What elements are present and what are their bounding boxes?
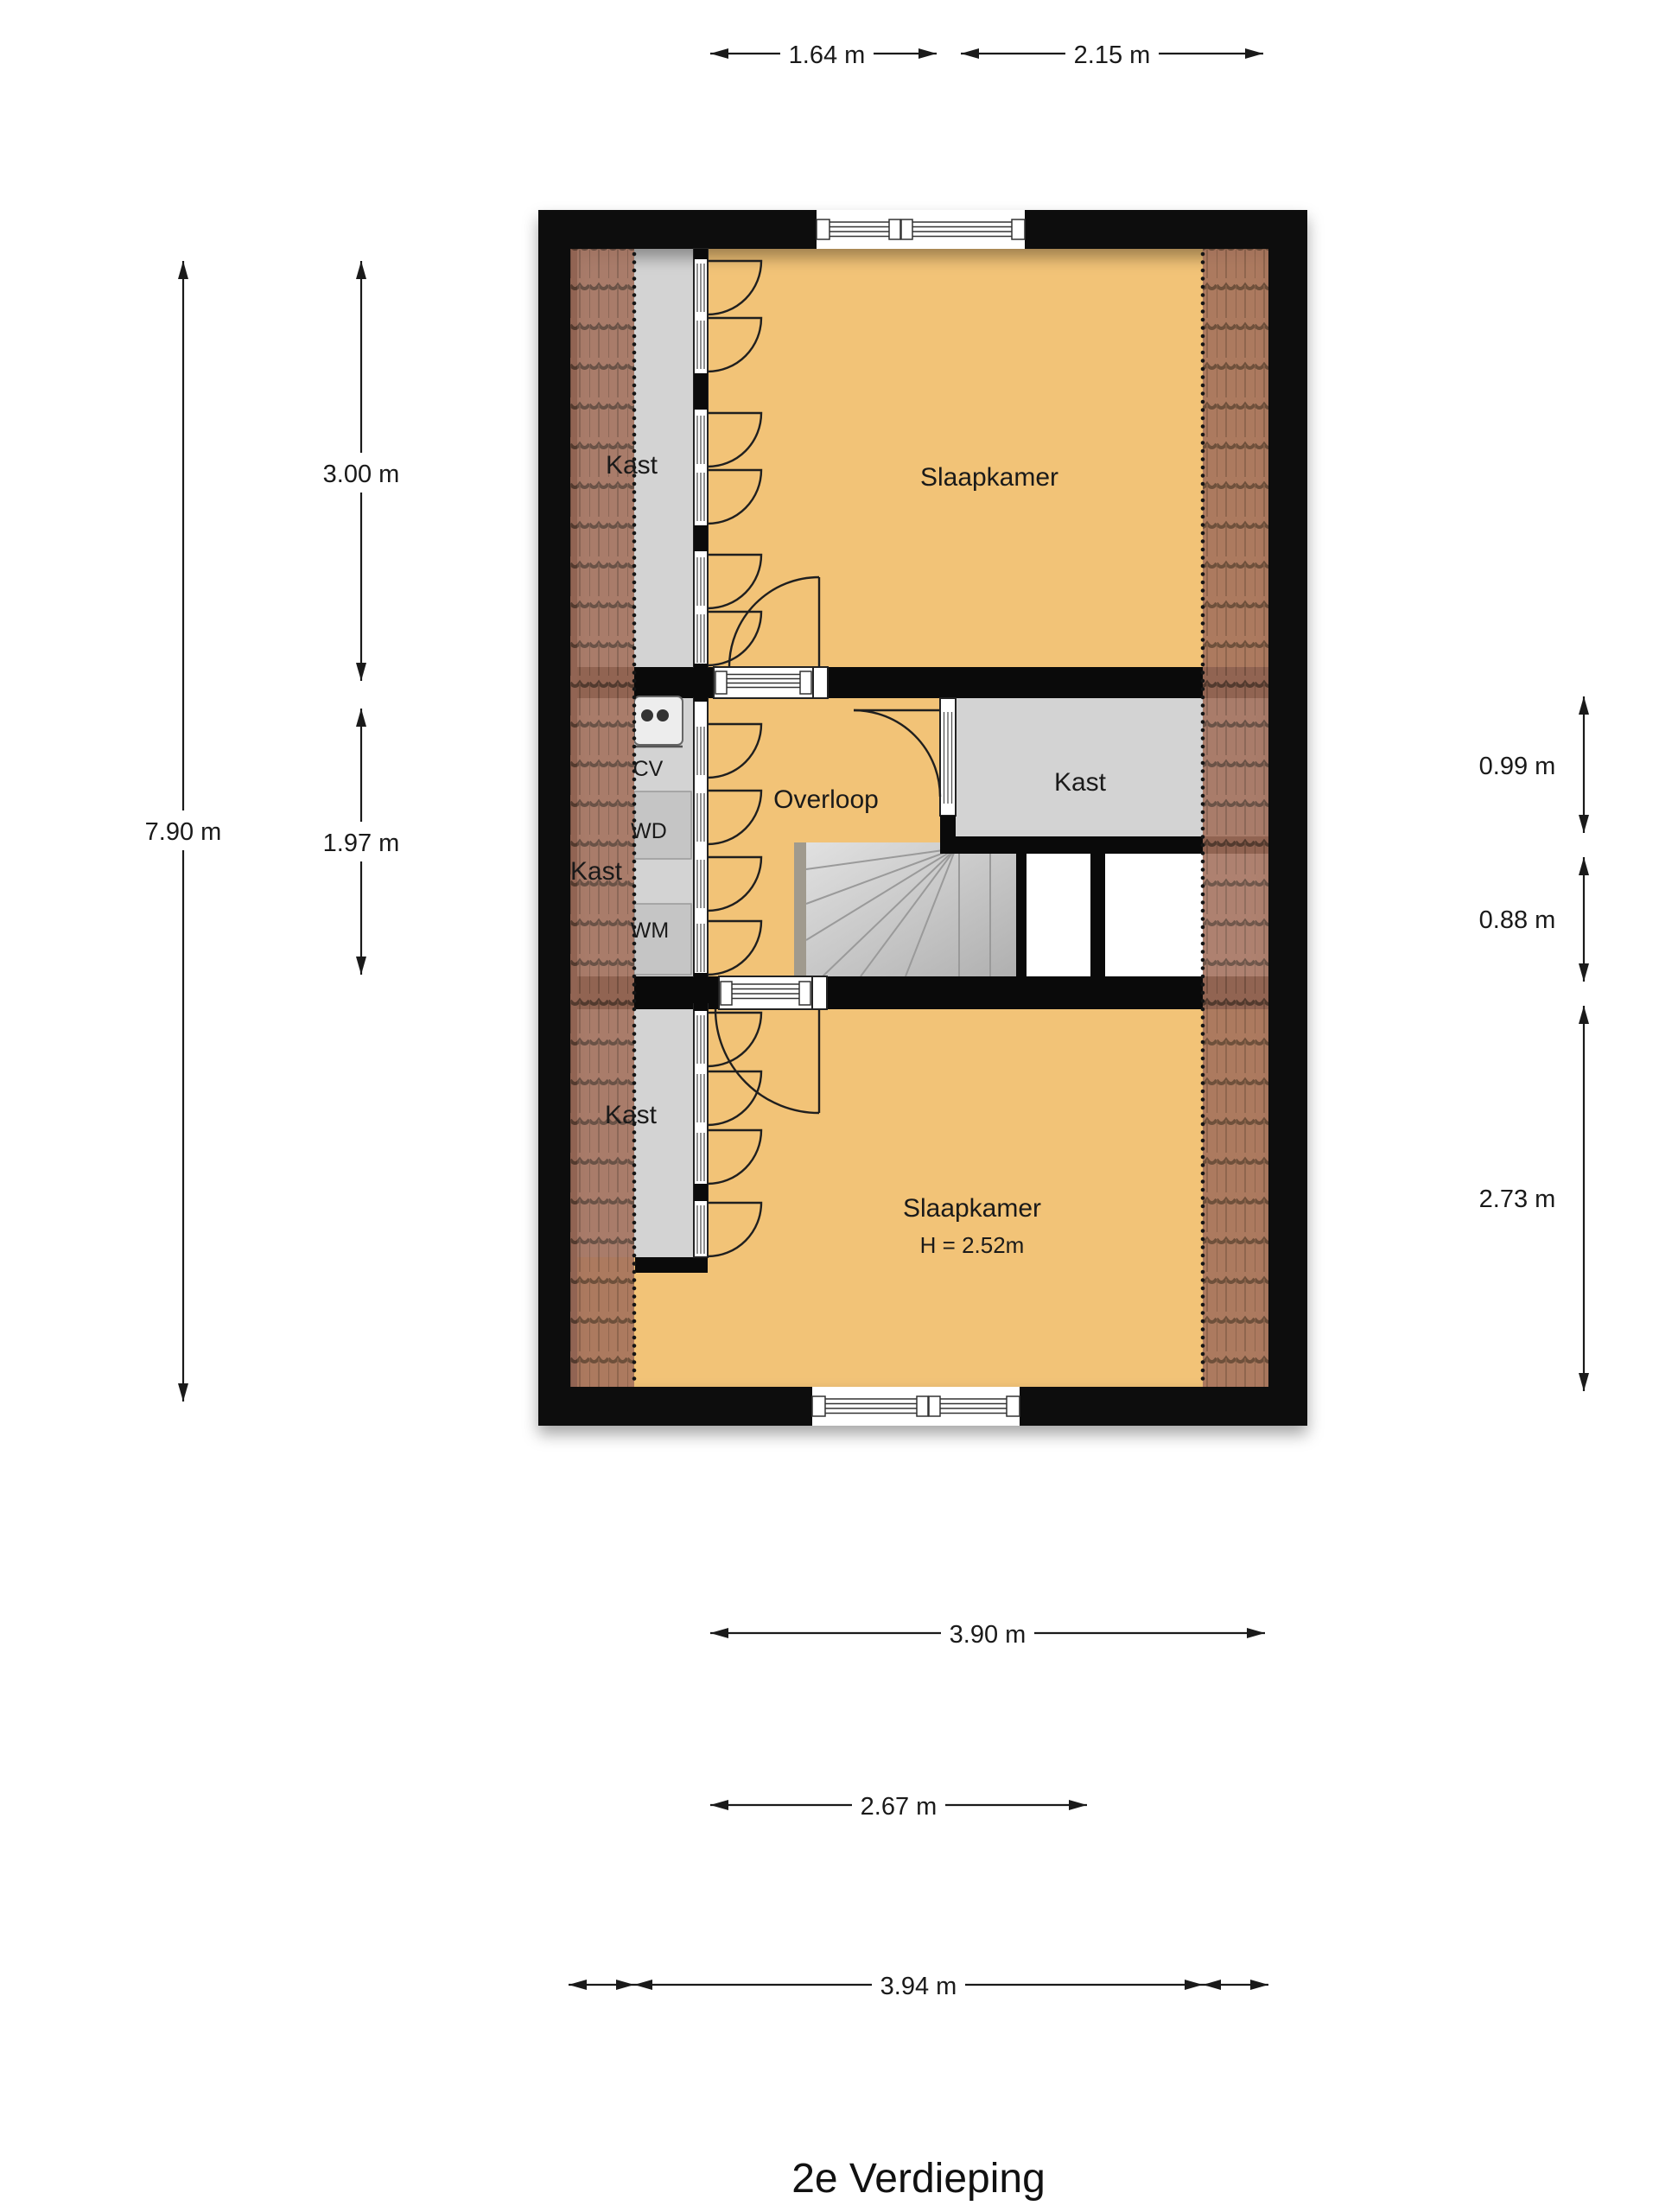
dim-label-267: 2.67 m: [861, 1793, 938, 1821]
label-slaapkamer-bottom: Slaapkamer: [903, 1194, 1041, 1223]
dim-label-164: 1.64 m: [789, 41, 866, 69]
dimension-top-right: 2.15 m: [961, 36, 1263, 71]
window-top: [817, 210, 1025, 249]
floor-plan-drawing: Kast Slaapkamer CV WD WM Kast Overloop K…: [0, 0, 1659, 2212]
page-title: 2e Verdieping: [791, 2156, 1046, 2202]
dim-label-215: 2.15 m: [1074, 41, 1151, 69]
dim-label-394: 3.94 m: [880, 1973, 957, 2000]
interior-window-top: [714, 667, 813, 698]
dimension-bottom-total: 3.94 m: [569, 1967, 1268, 2002]
dimension-top-left: 1.64 m: [710, 36, 937, 71]
dimension-left-middle: 1.97 m: [304, 709, 418, 975]
dim-label-088: 0.88 m: [1479, 906, 1556, 934]
dim-label-300: 3.00 m: [323, 461, 400, 488]
cv-boiler-icon: [634, 696, 683, 747]
label-ceiling-height: H = 2.52m: [920, 1232, 1025, 1258]
label-wd: WD: [631, 819, 667, 843]
dim-label-390: 3.90 m: [950, 1621, 1027, 1649]
dim-label-197: 1.97 m: [323, 829, 400, 857]
window-bottom: [812, 1387, 1020, 1426]
dimension-left-top: 3.00 m: [304, 261, 418, 681]
label-kast-bottom: Kast: [605, 1101, 658, 1129]
dim-label-790: 7.90 m: [145, 818, 222, 846]
interior-window-bottom: [719, 976, 812, 1009]
dimension-bottom-room: 3.90 m: [710, 1616, 1265, 1650]
dim-label-099: 0.99 m: [1479, 753, 1556, 780]
staircase: [794, 842, 1016, 976]
dimension-right-bottom: 2.73 m: [1479, 1006, 1584, 1391]
label-kast-right: Kast: [1054, 768, 1107, 797]
label-kast-mid-left: Kast: [570, 857, 623, 886]
dimension-right-kast: 0.99 m: [1479, 696, 1584, 833]
roof-strip-left: [570, 249, 634, 1387]
dimension-bottom-middle: 2.67 m: [710, 1788, 1087, 1822]
dimension-right-void: 0.88 m: [1479, 857, 1584, 982]
void-left: [1027, 854, 1090, 976]
label-kast-top: Kast: [606, 451, 658, 480]
dim-label-273: 2.73 m: [1479, 1185, 1556, 1213]
roof-strip-right: [1203, 249, 1268, 1387]
label-overloop: Overloop: [773, 785, 879, 814]
floor-plan-page: Kast Slaapkamer CV WD WM Kast Overloop K…: [0, 0, 1659, 2212]
label-cv: CV: [633, 757, 664, 781]
dimension-left-total: 7.90 m: [126, 261, 240, 1402]
label-slaapkamer-top: Slaapkamer: [920, 463, 1058, 492]
label-wm: WM: [631, 918, 669, 943]
